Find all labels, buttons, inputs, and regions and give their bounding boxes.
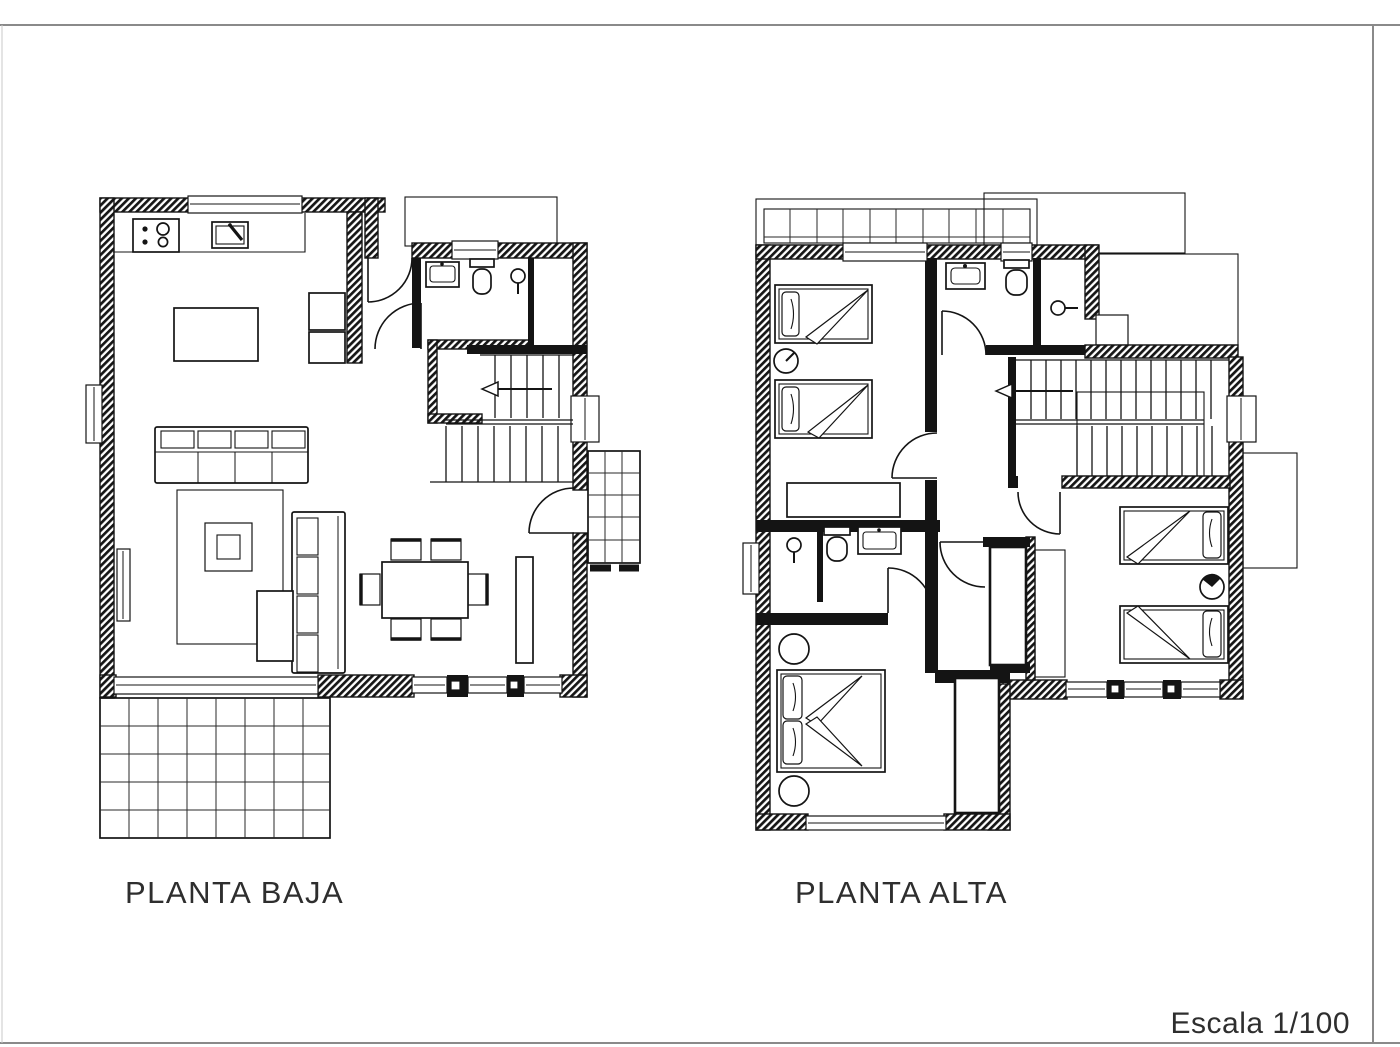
stairs-icon	[996, 360, 1229, 476]
nightstand-clock-icon	[1200, 574, 1224, 599]
closet	[1035, 550, 1065, 677]
door-icon	[942, 311, 986, 355]
window-icon	[571, 396, 599, 442]
toilet-icon	[824, 527, 850, 561]
nightstand-clock-icon	[774, 349, 798, 373]
window-icon	[1124, 682, 1163, 697]
bathroom-ground	[426, 259, 525, 294]
kitchen-island	[174, 308, 258, 361]
kitchen-cabinet	[309, 332, 345, 363]
living-room	[117, 427, 533, 673]
chair-icon	[391, 539, 421, 560]
window-icon	[743, 543, 759, 594]
toilet-icon	[470, 259, 494, 294]
round-nightstand	[779, 634, 809, 664]
window-icon	[843, 243, 927, 261]
chair-icon	[391, 619, 421, 640]
window-icon	[524, 677, 562, 693]
floorplan-canvas: PLANTA BAJA	[0, 0, 1400, 1047]
terrace-icon	[100, 698, 330, 838]
scale-label: Escala 1/100	[1171, 1007, 1350, 1040]
door-icon	[892, 433, 937, 478]
bedroom-1	[774, 285, 900, 517]
door-icon	[368, 258, 412, 302]
sofa-icon	[155, 427, 308, 483]
chair-icon	[360, 574, 380, 605]
planta-alta-label: PLANTA ALTA	[795, 875, 1008, 910]
porch-icon	[588, 451, 640, 568]
sink-icon	[946, 263, 985, 289]
planta-alta-plan: PLANTA ALTA	[743, 193, 1297, 910]
chair-icon	[431, 619, 461, 640]
dining-set	[360, 539, 488, 640]
kitchen	[113, 213, 345, 363]
desk	[787, 483, 900, 517]
planta-baja-plan: PLANTA BAJA	[86, 196, 640, 910]
window-icon	[86, 385, 102, 443]
window-icon	[114, 677, 318, 694]
window-icon	[412, 677, 447, 693]
drawing-sheet: PLANTA BAJA	[0, 0, 1400, 1047]
kitchen-cabinet	[309, 293, 345, 330]
closet	[990, 547, 1026, 665]
shower-icon	[787, 538, 801, 563]
bed-icon	[775, 285, 872, 344]
window-icon	[1066, 682, 1107, 697]
bed-icon	[1120, 507, 1228, 564]
bed-icon	[775, 380, 872, 438]
toilet-icon	[1004, 260, 1029, 295]
dining-table	[382, 562, 468, 618]
balcony-icon	[756, 199, 1037, 245]
bathroom-upper-2	[787, 527, 901, 563]
window-icon	[468, 677, 507, 693]
door-icon	[940, 542, 985, 587]
planta-baja-label: PLANTA BAJA	[125, 875, 344, 910]
chair-icon	[431, 539, 461, 560]
entry-canopy-outline	[405, 197, 557, 246]
round-nightstand	[779, 776, 809, 806]
sink-icon	[858, 527, 901, 554]
sink-icon	[212, 222, 248, 248]
window-icon	[806, 816, 946, 830]
window-icon	[1227, 396, 1256, 442]
bedroom-2	[1120, 507, 1228, 663]
window-icon	[452, 241, 498, 259]
wardrobe	[955, 678, 999, 813]
door-icon	[529, 488, 574, 533]
window-icon	[1001, 243, 1032, 261]
bedroom-principal	[777, 634, 999, 813]
stairwell-opening-line	[1077, 392, 1204, 476]
double-bed-icon	[777, 670, 885, 772]
roof-outline	[1243, 453, 1297, 568]
window-icon	[1181, 682, 1220, 697]
chaise-sofa-icon	[257, 512, 345, 673]
chair-icon	[468, 574, 488, 605]
shower-icon	[511, 269, 525, 294]
coffee-table	[205, 523, 252, 571]
stair-direction-arrow	[996, 384, 1012, 398]
shower-icon	[1051, 301, 1078, 315]
sink-icon	[426, 262, 459, 287]
stove-icon	[133, 219, 179, 252]
window-icon	[188, 196, 302, 213]
bathroom-upper-1	[946, 260, 1078, 315]
sideboard	[516, 557, 533, 663]
door-icon	[1018, 492, 1060, 534]
stair-direction-arrow	[482, 382, 498, 396]
radiator	[117, 549, 130, 621]
bed-icon	[1120, 606, 1228, 663]
